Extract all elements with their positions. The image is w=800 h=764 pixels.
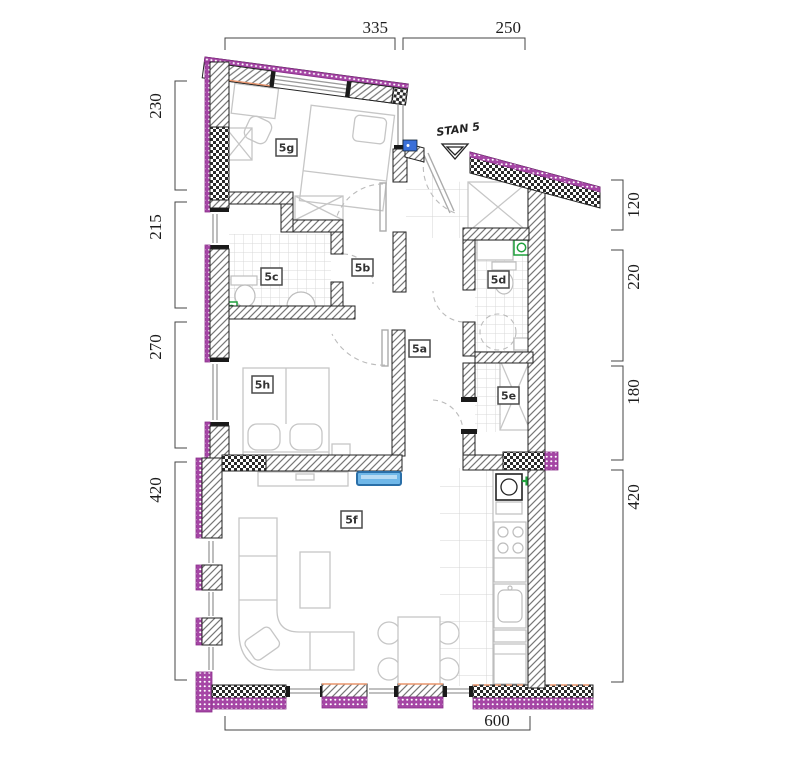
shower-seat-5d [514, 338, 529, 350]
floor-plan-drawing: 5g 5c 5b 5a 5d 5e 5h 5f [0, 0, 800, 764]
room-label-5a: 5a [409, 340, 430, 357]
dim-left-215: 215 [146, 214, 165, 240]
room-label-5d: 5d [488, 271, 509, 288]
dim-left-270: 270 [146, 334, 165, 360]
room-label-5c-text: 5c [264, 271, 278, 284]
stove [494, 522, 526, 558]
dim-top-250: 250 [496, 18, 522, 37]
dim-bottom-600: 600 [484, 711, 510, 730]
room-label-5b: 5b [352, 259, 373, 276]
room-5e-tile-floor [475, 364, 501, 432]
dim-left-420: 420 [146, 477, 165, 503]
room-label-5e-text: 5e [501, 390, 516, 403]
room-label-5g-text: 5g [279, 142, 295, 155]
dim-right-120: 120 [624, 192, 643, 218]
dim-right-220: 220 [624, 264, 643, 290]
room-label-5b-text: 5b [355, 262, 371, 275]
boiler [496, 474, 522, 500]
room-label-5a-text: 5a [412, 343, 427, 356]
room-label-5c: 5c [261, 268, 282, 285]
dim-top-335: 335 [363, 18, 389, 37]
coffee-table-5f [300, 552, 330, 608]
wall-right [528, 186, 545, 688]
room-label-5e: 5e [498, 387, 519, 404]
sink-5d [477, 240, 513, 260]
washing-machine-5d [514, 240, 529, 255]
dim-right-180: 180 [624, 379, 643, 405]
room-label-5d-text: 5d [491, 274, 507, 287]
entrance-sensor [403, 140, 417, 151]
room-label-5g: 5g [276, 139, 297, 156]
dim-left-230: 230 [146, 93, 165, 119]
kitchen-sink [494, 584, 526, 628]
room-label-5h: 5h [252, 376, 273, 393]
room-label-5f: 5f [341, 511, 362, 528]
room-label-5h-text: 5h [255, 379, 271, 392]
floor-plan: 5g 5c 5b 5a 5d 5e 5h 5f [0, 0, 800, 764]
desk-5g [231, 83, 278, 118]
room-label-5f-text: 5f [345, 514, 358, 527]
dim-right-420: 420 [624, 484, 643, 510]
kitchen-tile-floor [440, 468, 493, 686]
fridge [494, 644, 526, 684]
kitchen-counter [493, 470, 531, 688]
